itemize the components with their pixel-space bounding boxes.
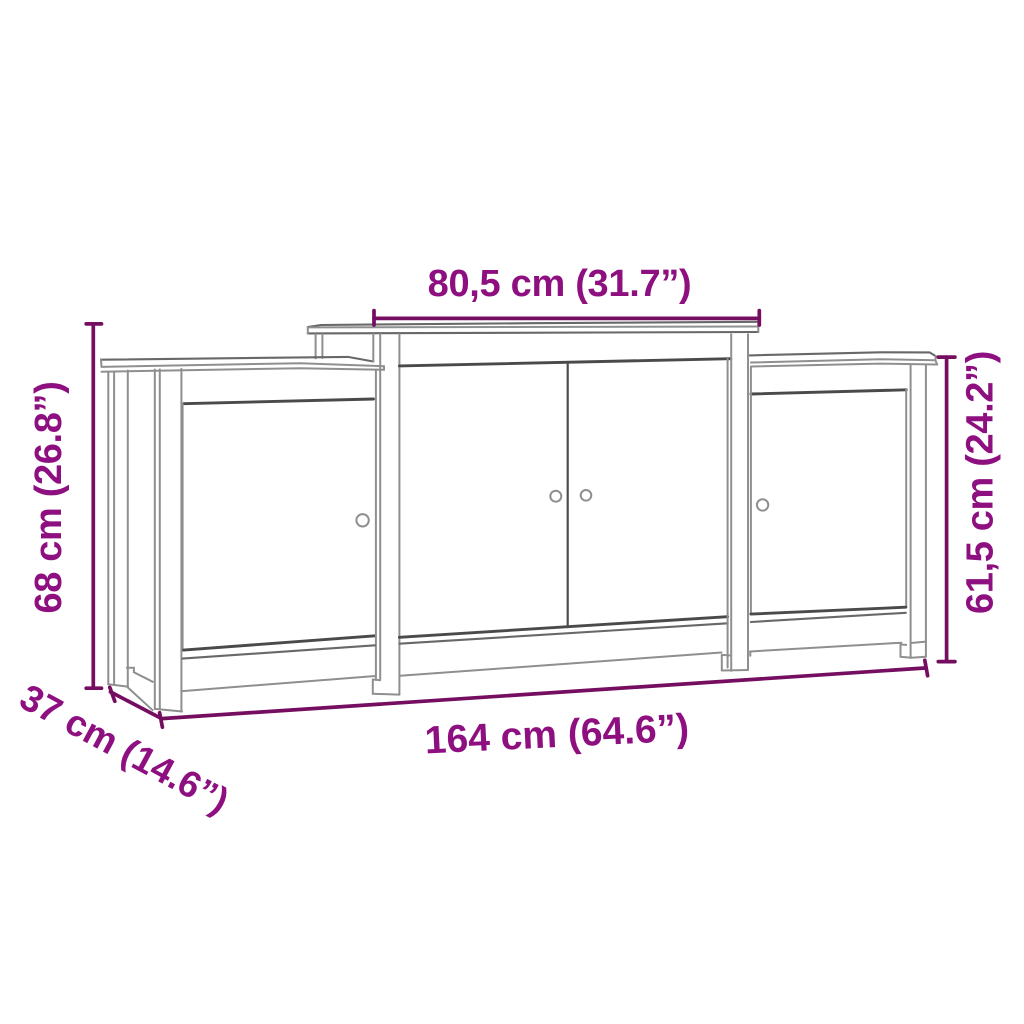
svg-text:68 cm (26.8”): 68 cm (26.8”) xyxy=(28,381,70,613)
svg-text:80,5 cm (31.7”): 80,5 cm (31.7”) xyxy=(428,263,692,305)
svg-text:61,5 cm (24.2”): 61,5 cm (24.2”) xyxy=(960,351,1002,614)
svg-text:164 cm (64.6”): 164 cm (64.6”) xyxy=(424,707,690,763)
